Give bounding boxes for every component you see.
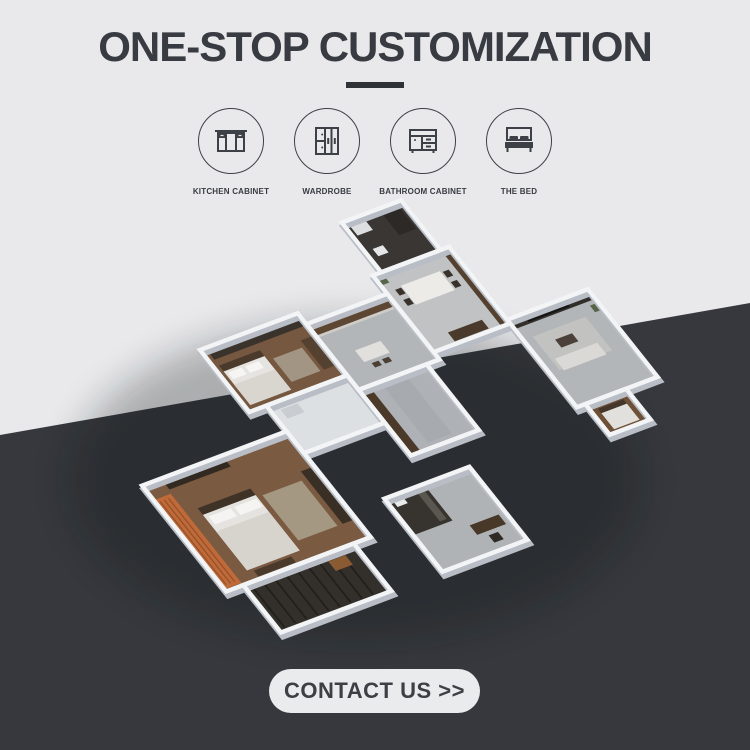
feature-label: KITCHEN CABINET [193, 187, 269, 196]
feature-bathroom-cabinet: BATHROOM CABINET [376, 108, 470, 196]
page-title: ONE-STOP CUSTOMIZATION [0, 24, 750, 70]
bathroom-cabinet-icon [403, 121, 443, 161]
title-divider [346, 82, 404, 88]
contact-us-button[interactable]: CONTACT US >> [269, 669, 480, 713]
feature-circle [390, 108, 456, 174]
feature-circle [294, 108, 360, 174]
feature-wardrobe: WARDROBE [280, 108, 374, 196]
feature-the-bed: THE BED [472, 108, 566, 196]
feature-label: THE BED [501, 187, 538, 196]
wardrobe-icon [307, 121, 347, 161]
feature-label: WARDROBE [302, 187, 351, 196]
the-bed-icon [499, 121, 539, 161]
promo-banner: ONE-STOP CUSTOMIZATION KITCHEN CABINET [0, 0, 750, 750]
feature-circle [486, 108, 552, 174]
feature-kitchen-cabinet: KITCHEN CABINET [184, 108, 278, 196]
feature-label: BATHROOM CABINET [379, 187, 467, 196]
feature-circle [198, 108, 264, 174]
kitchen-cabinet-icon [211, 121, 251, 161]
feature-row: KITCHEN CABINET WARDROBE [184, 108, 566, 196]
